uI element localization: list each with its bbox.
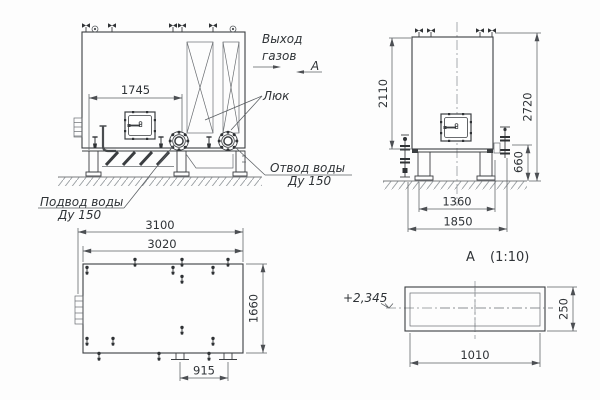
air-valve-icon	[476, 28, 484, 37]
section-title: А	[466, 250, 475, 265]
air-valve-icon	[108, 23, 116, 32]
svg-text:1850: 1850	[443, 215, 472, 229]
front-shell-outline	[82, 32, 245, 148]
water-outlet-flange-icon	[218, 131, 239, 152]
fitting-bolt-icon	[211, 337, 214, 346]
section-view: А (1:10) +2,345 250 1010	[343, 250, 577, 367]
air-valve-icon	[415, 28, 423, 37]
svg-text:1660: 1660	[247, 294, 261, 323]
svg-text:2110: 2110	[376, 79, 390, 108]
gas-duct-right	[223, 42, 239, 133]
air-valve-icon	[488, 28, 496, 37]
fitting-bolt-icon	[180, 275, 183, 284]
level-mark: +2,345	[343, 291, 393, 308]
dim-250: 250	[547, 287, 577, 331]
air-valve-icon	[169, 23, 177, 32]
gas-duct-left	[187, 42, 213, 133]
vent-cap-icon	[92, 26, 98, 32]
svg-text:Ду 150: Ду 150	[287, 174, 332, 188]
svg-text:250: 250	[557, 298, 571, 320]
svg-text:1360: 1360	[442, 195, 471, 209]
fitting-bolt-icon	[111, 337, 114, 346]
air-valve-icon	[427, 28, 435, 37]
svg-text:+2,345: +2,345	[343, 291, 387, 305]
support-foot	[219, 353, 237, 360]
dim-2110: 2110	[376, 38, 411, 149]
gas-flow-arrow-icon	[273, 65, 281, 69]
svg-text:Ду 150: Ду 150	[57, 208, 102, 222]
dim-3100: 3100	[78, 218, 243, 294]
fitting-bolt-icon	[180, 326, 183, 335]
left-nozzle-flange	[74, 118, 82, 137]
section-scale: (1:10)	[490, 250, 529, 265]
svg-text:Отвод воды: Отвод воды	[270, 161, 345, 175]
left-nozzle-flange	[75, 296, 83, 324]
vent-cap-icon	[230, 26, 236, 32]
drawing-canvas: 1745 Выход газов А Люк Отвод воды Ду 150…	[0, 0, 600, 400]
svg-text:Выход: Выход	[262, 32, 302, 46]
dim-3020: 3020	[83, 237, 243, 262]
air-valve-icon	[82, 23, 90, 32]
plan-outline	[83, 264, 243, 353]
front-view: 1745 Выход газов А Люк Отвод воды Ду 150…	[38, 23, 352, 222]
svg-text:Люк: Люк	[262, 89, 290, 103]
section-view-arrow-icon	[296, 70, 304, 74]
dim-915: 915	[180, 362, 228, 381]
ground-hatch	[58, 177, 262, 186]
fitting-bolt-icon	[97, 352, 100, 361]
svg-text:газов: газов	[262, 49, 296, 63]
drawing-sheet: 1745 Выход газов А Люк Отвод воды Ду 150…	[0, 0, 600, 400]
air-valve-icon	[178, 23, 186, 32]
fitting-bolt-icon	[180, 258, 183, 267]
section-cut-marker: А	[296, 59, 322, 74]
air-valve-icon	[209, 23, 217, 32]
fitting-bolt-icon	[85, 266, 88, 275]
fitting-bolt-icon	[133, 258, 136, 267]
fitting-bolt-icon	[85, 337, 88, 346]
svg-text:2720: 2720	[521, 92, 535, 121]
anchor-bolt-icon	[92, 137, 97, 148]
plan-view: 3100 3020 1660 915	[75, 218, 267, 381]
base-frame	[415, 152, 495, 180]
drain-pipe	[103, 126, 116, 151]
fitting-bolt-icon	[157, 352, 160, 361]
fitting-bolt-icon	[207, 352, 210, 361]
side-view: 2110 2720 660 1360 1850	[376, 22, 541, 232]
dim-1660: 1660	[246, 264, 267, 353]
fitting-bolt-icon	[171, 266, 174, 275]
svg-text:915: 915	[193, 364, 215, 378]
svg-text:1010: 1010	[460, 348, 489, 362]
svg-text:3020: 3020	[147, 237, 176, 251]
manhole-icon	[440, 113, 472, 142]
manhole-icon	[124, 111, 156, 140]
svg-text:Подвод воды: Подвод воды	[40, 195, 123, 209]
svg-text:3100: 3100	[145, 218, 174, 232]
svg-text:660: 660	[512, 151, 526, 173]
label-hatch: Люк	[205, 89, 290, 130]
label-gas-outlet: Выход газов	[253, 32, 302, 69]
ground-hatch	[383, 181, 527, 190]
fitting-bolt-icon	[226, 258, 229, 267]
support-foot	[171, 353, 189, 360]
dim-660: 660	[512, 145, 533, 181]
water-outlet-pipe	[494, 127, 510, 158]
section-letter: А	[310, 59, 319, 73]
anchor-bolt-icon	[206, 137, 211, 148]
water-supply-pipe	[400, 135, 410, 177]
base-frame	[82, 151, 247, 176]
fitting-bolt-icon	[211, 266, 214, 275]
anchor-bolt-icon	[158, 137, 163, 148]
dim-1745-text: 1745	[121, 83, 150, 97]
